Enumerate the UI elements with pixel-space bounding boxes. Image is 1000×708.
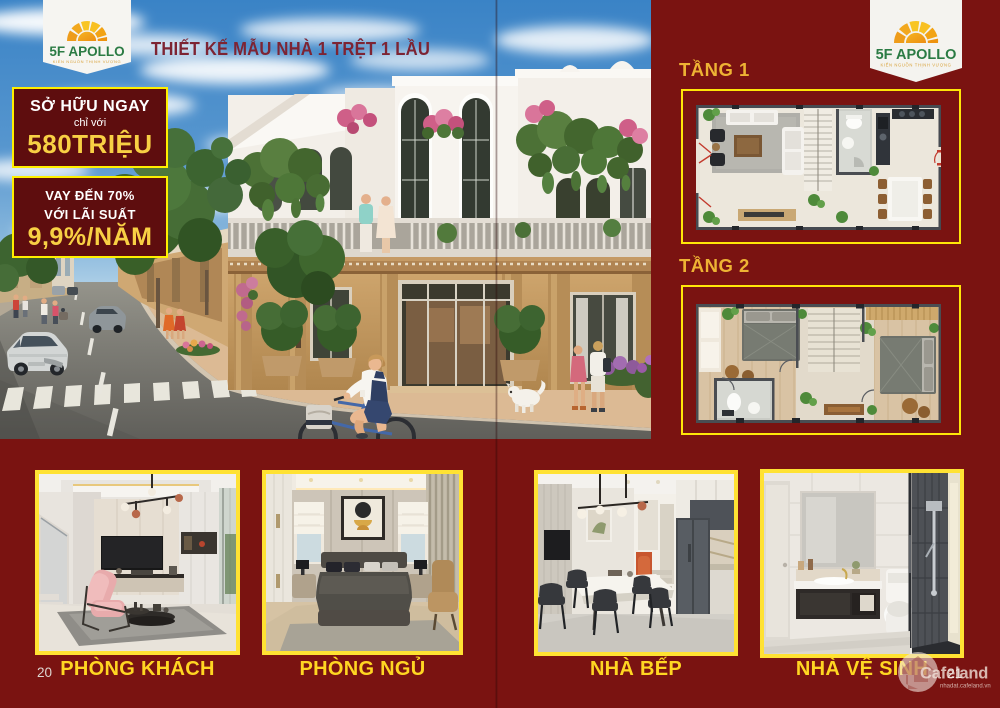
svg-text:5F APOLLO: 5F APOLLO [876, 47, 957, 63]
svg-text:5F APOLLO: 5F APOLLO [49, 44, 124, 59]
svg-text:nhadat.cafeland.vn: nhadat.cafeland.vn [940, 684, 991, 690]
svg-text:KIẾN NGUỒN THỊNH VƯỢNG: KIẾN NGUỒN THỊNH VƯỢNG [880, 63, 951, 68]
svg-text:Cafeland: Cafeland [920, 665, 988, 683]
svg-text:KIẾN NGUỒN THỊNH VƯỢNG: KIẾN NGUỒN THỊNH VƯỢNG [53, 59, 121, 64]
